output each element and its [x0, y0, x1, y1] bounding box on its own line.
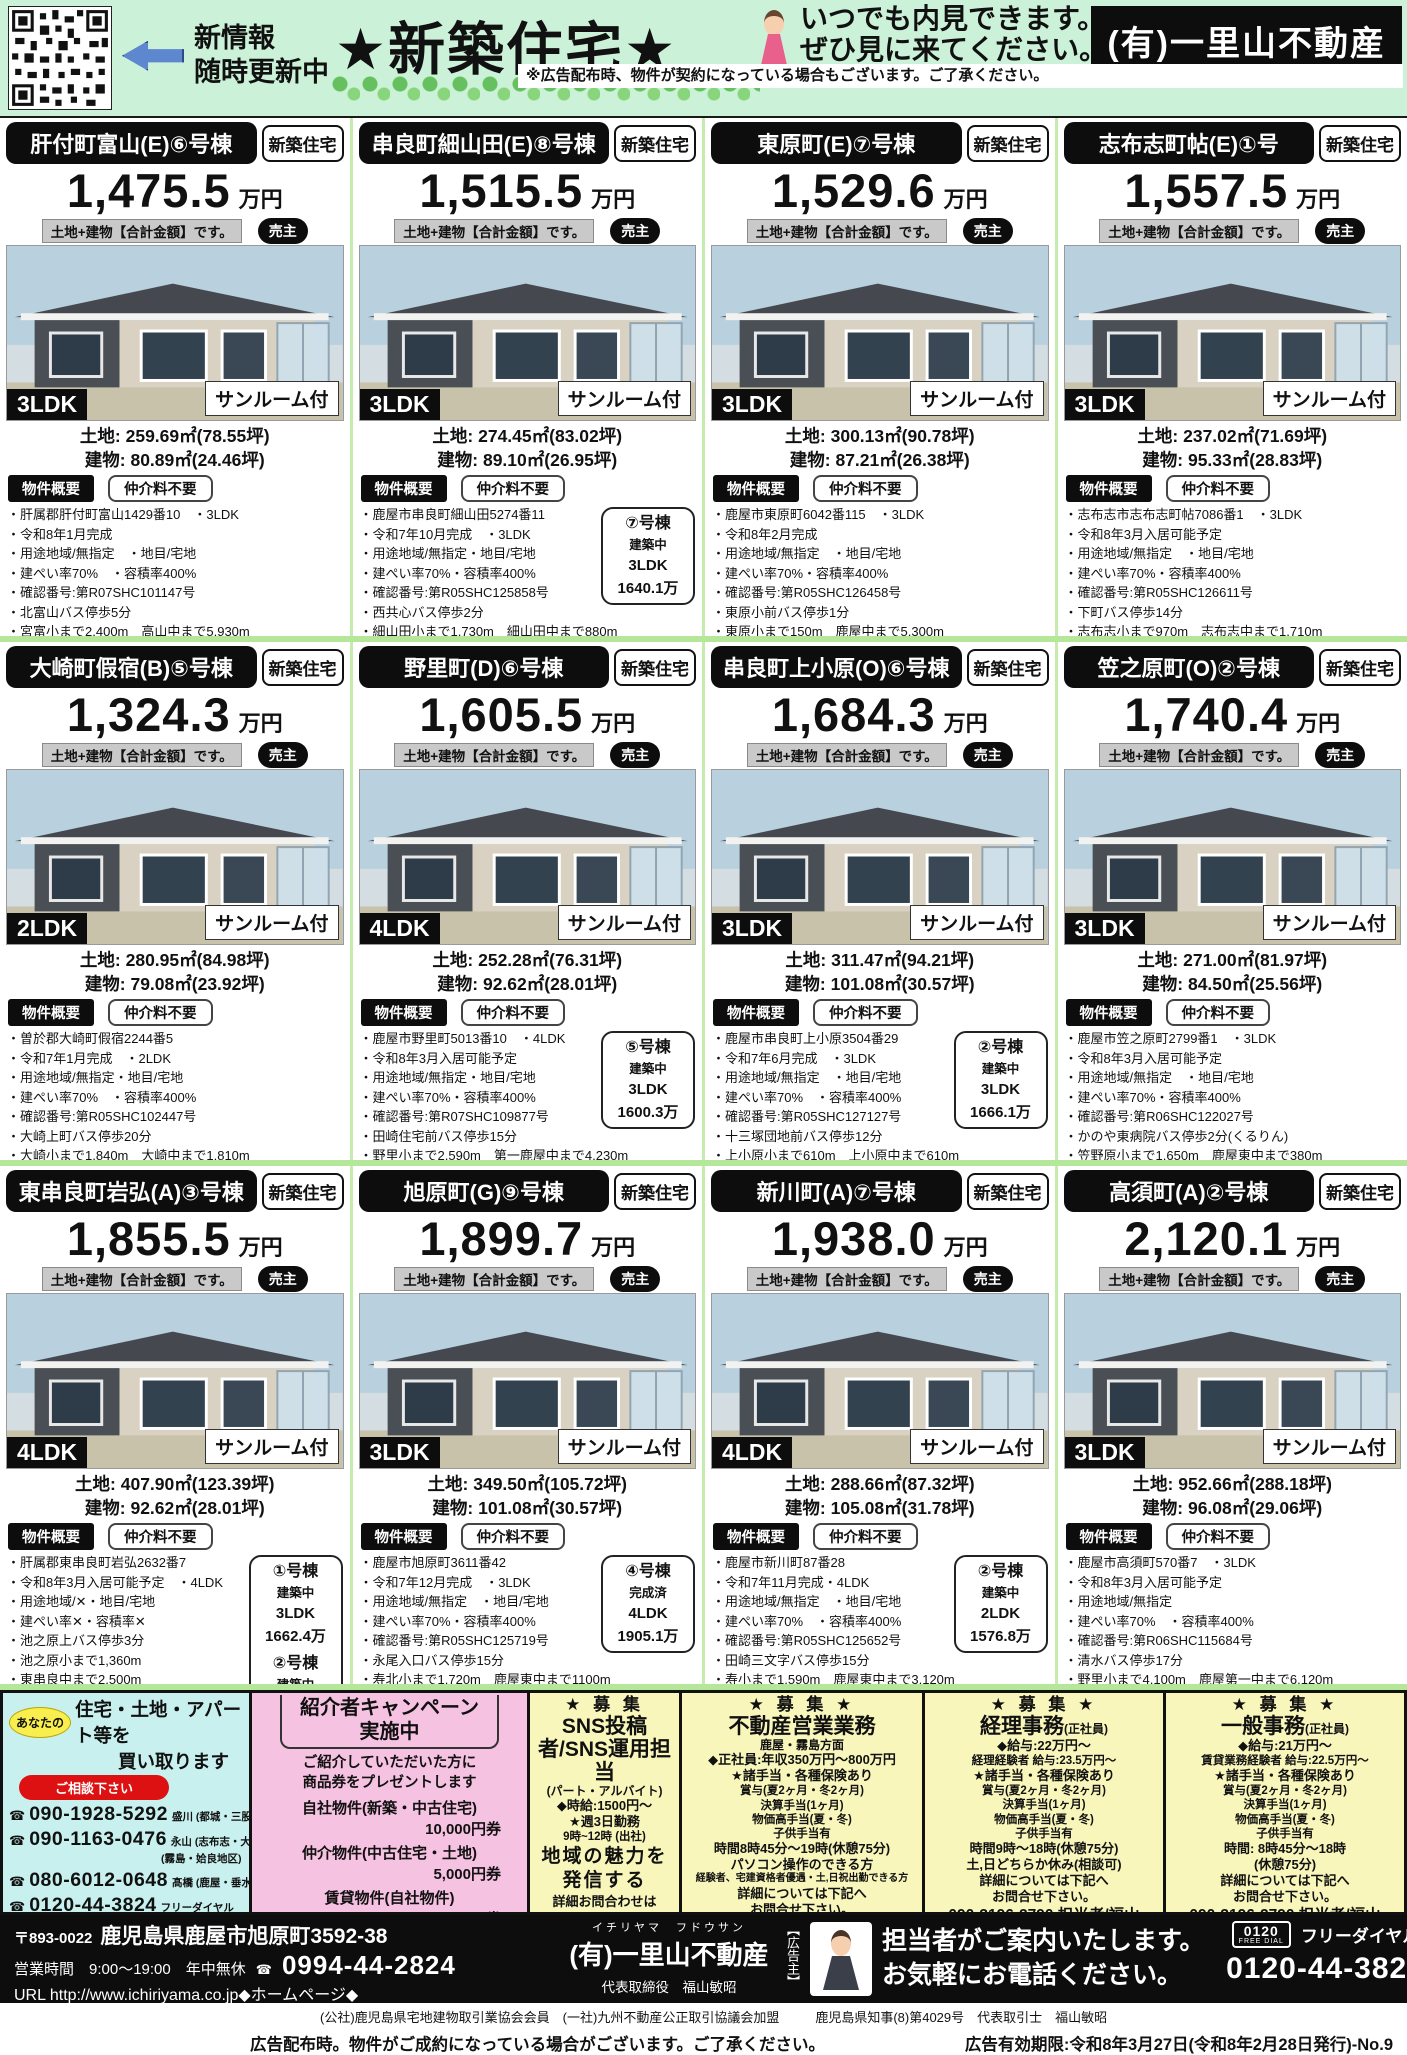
qr-code: [8, 6, 112, 110]
price-unit: 万円: [591, 711, 635, 736]
property-detail: 永尾入口バス停歩15分: [360, 1651, 696, 1671]
unit-box-status: 建築中: [605, 1060, 691, 1079]
new-build-badge: 新築住宅: [1319, 649, 1401, 686]
detail-list: 志布志市志布志町帖7086番1 ・3LDK令和8年3月入居可能予定用途地域/無指…: [1065, 505, 1401, 636]
land-label: 土地:: [432, 426, 473, 446]
summary-badge: 物件概要: [361, 475, 447, 502]
contract-note: 広告配布時。物件がご成約になっている場合がございます。ご了承ください。: [250, 2031, 825, 2055]
unit-box-layout: 3LDK: [605, 555, 691, 578]
job-line: 090-3196-2790 担当者/福山: [1168, 1906, 1402, 1915]
building-label: 建物:: [85, 974, 126, 994]
job-line: 物価高手当(夏・冬): [1168, 1813, 1402, 1827]
no-fee-badge: 仲介料不要: [813, 1523, 918, 1550]
unit-box-status: 完成済: [605, 1584, 691, 1603]
price-unit: 万円: [944, 1235, 988, 1260]
job-title: 不動産営業業務: [729, 1715, 876, 1738]
land-area: 土地: 288.66㎡(87.32坪): [711, 1473, 1049, 1497]
building-value: 84.50㎡(25.56坪): [1188, 974, 1322, 994]
no-fee-badge: 仲介料不要: [1166, 1523, 1271, 1550]
property-detail: 上小原小まで610m 上小原中まで610m: [712, 1146, 1048, 1160]
building-label: 建物:: [437, 974, 478, 994]
land-area: 土地: 237.02㎡(71.69坪): [1064, 425, 1402, 449]
unit-box-layout: 4LDK: [605, 1603, 691, 1626]
building-label: 建物:: [785, 974, 826, 994]
property-detail: 鹿屋市笠之原町2799番1 ・3LDK: [1065, 1029, 1401, 1049]
property-detail: 確認番号:第R05SHC126611号: [1065, 583, 1401, 603]
building-label: 建物:: [1142, 974, 1183, 994]
buyback-phone-number: 090-1163-0476: [29, 1828, 167, 1850]
price-unit: 万円: [591, 1235, 635, 1260]
buyback-phone-region: フリーダイヤル: [161, 1902, 234, 1914]
property-title: 大崎町假宿(B)⑤号棟: [6, 646, 257, 688]
campaign-item-label: 賃貸物件(自社物件): [260, 1887, 519, 1908]
job-lines: ◆時給:1500円〜★週3日勤務9時~12時 (出社)地域の魅力を発信する詳細お…: [532, 1798, 677, 1915]
land-area: 土地: 259.69㎡(78.55坪): [6, 425, 344, 449]
phone-icon: ☎: [9, 1834, 25, 1849]
property-card: 串良町細山田(E)⑧号棟 新築住宅 1,515.5万円 土地+建物【合計金額】で…: [350, 118, 703, 636]
building-value: 92.62㎡(28.01坪): [483, 974, 617, 994]
total-amount-label: 土地+建物【合計金額】です。: [42, 219, 242, 243]
sunroom-tag: サンルーム付: [558, 1429, 691, 1464]
property-photo: 3LDK サンルーム付: [359, 245, 697, 421]
property-detail: 令和8年2月完成: [712, 525, 1048, 545]
no-fee-badge: 仲介料不要: [1166, 999, 1271, 1026]
land-label: 土地:: [785, 1474, 826, 1494]
job-line: ◆給与:22万円〜: [927, 1738, 1161, 1754]
buyback-title2: 買い取ります: [9, 1748, 243, 1774]
property-row: 肝付町富山(E)⑥号棟 新築住宅 1,475.5万円 土地+建物【合計金額】です…: [0, 118, 1407, 642]
property-photo: 3LDK サンルーム付: [1064, 245, 1402, 421]
buyback-bubble: あなたの: [9, 1707, 71, 1738]
job-line: ◆正社員:年収350万円〜800万円: [684, 1752, 920, 1768]
unit-box-status: 建築中: [958, 1060, 1044, 1079]
job-line: お問合せ下さい。: [1168, 1889, 1402, 1905]
job-line: 子供手当有: [684, 1827, 920, 1841]
building-value: 95.33㎡(28.83坪): [1188, 450, 1322, 470]
property-detail: 大崎小まで1,840m 大崎中まで1,810m: [7, 1146, 343, 1160]
property-price: 1,855.5: [67, 1212, 231, 1265]
property-detail: 建ぺい率70%・容積率400%: [1065, 564, 1401, 584]
campaign-item: 仲介物件(中古住宅・土地) 5,000円券: [260, 1842, 519, 1884]
land-area: 土地: 274.45㎡(83.02坪): [359, 425, 697, 449]
building-value: 101.08㎡(30.57坪): [478, 1498, 622, 1518]
footer: 〒893-0022鹿児島県鹿屋市旭原町3592-38 営業時間 9:00〜19:…: [0, 1915, 1407, 2003]
land-value: 300.13㎡(90.78坪): [831, 426, 975, 446]
unit-box: ①号棟建築中3LDK1662.4万②号棟建築中3LDK1669.1万: [249, 1555, 343, 1684]
property-title: 笠之原町(O)②号棟: [1064, 646, 1315, 688]
job-recruit-header: ★ 募 集 ★: [1168, 1695, 1402, 1715]
job-line: 詳細については下記へ: [927, 1873, 1161, 1889]
property-photo: 3LDK サンルーム付: [1064, 1293, 1402, 1469]
sunroom-tag: サンルーム付: [1263, 905, 1396, 940]
buyback-phone-region: 盛川 (都城・三股地区): [172, 1811, 252, 1823]
summary-badge: 物件概要: [713, 475, 799, 502]
staff-avatar-icon: [810, 1922, 872, 1996]
unit-box: ⑦号棟建築中3LDK1640.1万: [601, 507, 695, 605]
job-line: お問合せ下さい。: [684, 1902, 920, 1915]
land-label: 土地:: [80, 950, 121, 970]
property-price: 1,740.4: [1124, 688, 1288, 741]
property-detail: 志布志市志布志町帖7086番1 ・3LDK: [1065, 505, 1401, 525]
unit-box: ⑤号棟建築中3LDK1600.3万: [601, 1031, 695, 1129]
total-amount-label: 土地+建物【合計金額】です。: [394, 743, 594, 767]
property-detail: 宮富小まで2,400m 高山中まで5,930m: [7, 622, 343, 636]
building-area: 建物: 84.50㎡(25.56坪): [1064, 973, 1402, 997]
job-recruit-header: ★ 募 集 ★: [684, 1695, 920, 1715]
campaign-desc2: 商品券をプレゼントします: [260, 1773, 519, 1793]
no-fee-badge: 仲介料不要: [461, 475, 566, 502]
job-line: パソコン操作のできる方: [684, 1857, 920, 1873]
property-detail: 田崎三文字バス停歩15分: [712, 1651, 1048, 1671]
layout-tag: 3LDK: [712, 913, 792, 944]
buyback-panel: あなたの 住宅・土地・アパート等を 買い取ります ご相談下さい ☎ 090-19…: [0, 1690, 252, 1915]
property-photo: 4LDK サンルーム付: [6, 1293, 344, 1469]
new-build-badge: 新築住宅: [614, 125, 696, 162]
sunroom-tag: サンルーム付: [558, 905, 691, 940]
unit-box-section: ②号棟建築中2LDK1576.8万: [958, 1560, 1044, 1648]
land-value: 311.47㎡(94.21坪): [831, 950, 974, 970]
property-detail: 用途地域/無指定・地目/宅地: [7, 1068, 343, 1088]
job-title-suffix: (正社員): [1064, 1722, 1108, 1736]
property-title: 串良町上小原(O)⑥号棟: [711, 646, 962, 688]
sunroom-tag: サンルーム付: [910, 1429, 1043, 1464]
seller-badge: 売主: [610, 218, 660, 244]
layout-tag: 3LDK: [7, 389, 87, 420]
sunroom-tag: サンルーム付: [1263, 1429, 1396, 1464]
building-value: 101.08㎡(30.57坪): [831, 974, 975, 994]
job-line: 時間: 8時45分〜18時: [1168, 1841, 1402, 1857]
guide-line2: お気軽にお電話ください。: [882, 1959, 1205, 1993]
job-line: ★諸手当・各種保険あり: [1168, 1768, 1402, 1784]
property-photo: 3LDK サンルーム付: [359, 1293, 697, 1469]
building-area: 建物: 92.62㎡(28.01坪): [359, 973, 697, 997]
property-title: 串良町細山田(E)⑧号棟: [359, 122, 610, 164]
total-amount-label: 土地+建物【合計金額】です。: [1099, 219, 1299, 243]
seller-badge: 売主: [610, 742, 660, 768]
seller-badge: 売主: [258, 1266, 308, 1292]
summary-badge: 物件概要: [1066, 1523, 1152, 1550]
total-amount-label: 土地+建物【合計金額】です。: [42, 1267, 242, 1291]
building-value: 92.62㎡(28.01坪): [130, 1498, 264, 1518]
property-detail: 建ぺい率70%・容積率400%: [1065, 1088, 1401, 1108]
campaign-item: 賃貸物件(自社物件) 2,000円券: [260, 1887, 519, 1915]
unit-box-section: ②号棟建築中3LDK1666.1万: [958, 1036, 1044, 1124]
price-unit: 万円: [591, 187, 635, 212]
new-build-badge: 新築住宅: [614, 649, 696, 686]
job-lines: ◆給与:22万円〜経理経験者 給与:23.5万円〜★諸手当・各種保険あり賞与(夏…: [927, 1738, 1161, 1915]
property-detail: 用途地域/無指定: [1065, 1592, 1401, 1612]
building-area: 建物: 101.08㎡(30.57坪): [359, 1497, 697, 1521]
detail-list: 鹿屋市高須町570番7 ・3LDK令和8年3月入居可能予定用途地域/無指定建ぺい…: [1065, 1553, 1401, 1684]
job-line: 経験者、宅建資格者優遇・土,日祝出勤できる方: [684, 1873, 920, 1885]
seller-badge: 売主: [963, 1266, 1013, 1292]
building-label: 建物:: [437, 450, 478, 470]
buyback-phone-region-extra: (霧島・姶良地区): [9, 1851, 243, 1866]
land-area: 土地: 271.00㎡(81.97坪): [1064, 949, 1402, 973]
seller-badge: 売主: [1315, 742, 1365, 768]
job-title-suffix: (正社員): [1305, 1722, 1349, 1736]
building-label: 建物:: [790, 450, 831, 470]
property-detail: 建ぺい率70% ・容積率400%: [7, 564, 343, 584]
seller-badge: 売主: [1315, 1266, 1365, 1292]
buyback-phone-row: ☎ 090-1928-5292 盛川 (都城・三股地区): [9, 1803, 243, 1825]
buyback-phone-number: 0120-44-3824: [29, 1894, 156, 1915]
property-detail: 東原小前バス停歩1分: [712, 603, 1048, 623]
phone-icon: ☎: [9, 1900, 25, 1915]
price-unit: 万円: [944, 187, 988, 212]
price-unit: 万円: [239, 711, 283, 736]
no-fee-badge: 仲介料不要: [813, 475, 918, 502]
land-area: 土地: 252.28㎡(76.31坪): [359, 949, 697, 973]
land-label: 土地:: [785, 950, 826, 970]
update-line1: 新情報: [194, 22, 329, 56]
property-detail: 用途地域/無指定 ・地目/宅地: [1065, 544, 1401, 564]
property-price: 2,120.1: [1124, 1212, 1288, 1265]
no-fee-badge: 仲介料不要: [461, 999, 566, 1026]
building-value: 105.08㎡(31.78坪): [831, 1498, 975, 1518]
land-value: 237.02㎡(71.69坪): [1183, 426, 1327, 446]
property-price: 1,684.3: [772, 688, 936, 741]
property-detail: 建ぺい率70% ・容積率400%: [1065, 1612, 1401, 1632]
building-label: 建物:: [432, 1498, 473, 1518]
land-area: 土地: 407.90㎡(123.39坪): [6, 1473, 344, 1497]
association-line: (公社)鹿児島県宅地建物取引業協会会員 (一社)九州不動産公正取引協議会加盟 鹿…: [0, 2003, 1407, 2028]
land-area: 土地: 311.47㎡(94.21坪): [711, 949, 1049, 973]
update-line2: 随時更新中: [194, 56, 329, 90]
property-title: 東串良町岩弘(A)③号棟: [6, 1170, 257, 1212]
campaign-title: 紹介者キャンペーン 実施中: [280, 1695, 499, 1749]
new-build-badge: 新築住宅: [1319, 125, 1401, 162]
new-build-badge: 新築住宅: [967, 125, 1049, 162]
no-fee-badge: 仲介料不要: [813, 999, 918, 1026]
summary-badge: 物件概要: [361, 1523, 447, 1550]
land-value: 259.69㎡(78.55坪): [126, 426, 270, 446]
total-amount-label: 土地+建物【合計金額】です。: [1099, 1267, 1299, 1291]
campaign-item-label: 仲介物件(中古住宅・土地): [260, 1842, 519, 1863]
property-detail: 十三塚団地前バス停歩12分: [712, 1127, 1048, 1147]
layout-tag: 3LDK: [360, 1437, 440, 1468]
building-value: 79.08㎡(23.92坪): [130, 974, 264, 994]
sunroom-tag: サンルーム付: [205, 1429, 338, 1464]
property-detail: 寿北小まで1,720m 鹿屋東中まで1100m: [360, 1670, 696, 1684]
property-card: 肝付町富山(E)⑥号棟 新築住宅 1,475.5万円 土地+建物【合計金額】です…: [0, 118, 350, 636]
new-build-badge: 新築住宅: [262, 649, 344, 686]
job-posting: ★ 募 集 ★ 一般事務(正社員) ◆給与:21万円〜賃貸業務経験者 給与:22…: [1166, 1690, 1407, 1915]
building-label: 建物:: [1142, 1498, 1183, 1518]
land-label: 土地:: [80, 426, 121, 446]
seller-badge: 売主: [963, 218, 1013, 244]
property-detail: 野里小まで2,590m 第一鹿屋中まで4,230m: [360, 1146, 696, 1160]
no-fee-badge: 仲介料不要: [1166, 475, 1271, 502]
unit-box: ②号棟建築中3LDK1666.1万: [954, 1031, 1048, 1129]
building-label: 建物:: [85, 450, 126, 470]
property-detail: 野里小まで4,100m 鹿屋第一中まで6,120m: [1065, 1670, 1401, 1684]
property-card: 野里町(D)⑥号棟 新築住宅 1,605.5万円 土地+建物【合計金額】です。 …: [350, 642, 703, 1160]
postal-code: 〒893-0022: [14, 1930, 92, 1947]
left-arrow-icon: [122, 41, 184, 71]
unit-box-section: ②号棟建築中3LDK1669.1万: [253, 1652, 339, 1684]
buyback-phone-row: ☎ 0120-44-3824 フリーダイヤル: [9, 1894, 243, 1915]
summary-badge: 物件概要: [8, 1523, 94, 1550]
seller-badge: 売主: [963, 742, 1013, 768]
freedial-label: フリーダイヤル: [1301, 1922, 1407, 1947]
detail-list: 鹿屋市東原町6042番115 ・3LDK令和8年2月完成用途地域/無指定 ・地目…: [712, 505, 1048, 636]
unit-box-unit: ④号棟: [605, 1560, 691, 1584]
land-label: 土地:: [432, 950, 473, 970]
property-title: 肝付町富山(E)⑥号棟: [6, 122, 257, 164]
building-value: 87.21㎡(26.38坪): [835, 450, 969, 470]
address-text: 鹿児島県鹿屋市旭原町3592-38: [100, 1925, 387, 1948]
property-detail: 用途地域/無指定 ・地目/宅地: [712, 544, 1048, 564]
property-photo: 3LDK サンルーム付: [711, 245, 1049, 421]
unit-box-unit: ②号棟: [958, 1560, 1044, 1584]
new-build-badge: 新築住宅: [262, 125, 344, 162]
office-phone: 0994-44-2824: [282, 1950, 456, 1981]
phone-icon: ☎: [256, 1962, 272, 1978]
property-price: 1,475.5: [67, 164, 231, 217]
property-detail: 北富山バス停歩5分: [7, 603, 343, 623]
job-line: 物価高手当(夏・冬): [927, 1813, 1161, 1827]
job-line: 9時~12時 (出社): [532, 1830, 677, 1844]
total-amount-label: 土地+建物【合計金額】です。: [394, 1267, 594, 1291]
campaign-item-value: 2,000円券: [260, 1908, 519, 1915]
price-unit: 万円: [239, 187, 283, 212]
land-value: 274.45㎡(83.02坪): [478, 426, 622, 446]
layout-tag: 3LDK: [360, 389, 440, 420]
job-recruit-header: ★ 募 集: [532, 1695, 677, 1715]
job-lines: ◆正社員:年収350万円〜800万円★諸手当・各種保険あり賞与(夏2ヶ月・冬2ヶ…: [684, 1752, 920, 1915]
update-note: 新情報 随時更新中: [122, 22, 329, 90]
job-line: 詳細については下記へ: [1168, 1873, 1402, 1889]
building-area: 建物: 79.08㎡(23.92坪): [6, 973, 344, 997]
property-title: 野里町(D)⑥号棟: [359, 646, 610, 688]
building-area: 建物: 89.10㎡(26.95坪): [359, 449, 697, 473]
new-build-badge: 新築住宅: [262, 1173, 344, 1210]
layout-tag: 3LDK: [712, 389, 792, 420]
building-area: 建物: 92.62㎡(28.01坪): [6, 1497, 344, 1521]
property-detail: 下町バス停歩14分: [1065, 603, 1401, 623]
property-detail: 寿小まで1,590m 鹿屋東中まで3,120m: [712, 1670, 1048, 1684]
land-area: 土地: 952.66㎡(288.18坪): [1064, 1473, 1402, 1497]
unit-box-section: ①号棟建築中3LDK1662.4万: [253, 1560, 339, 1648]
consult-badge: ご相談下さい: [19, 1775, 169, 1800]
building-area: 建物: 105.08㎡(31.78坪): [711, 1497, 1049, 1521]
property-detail: 確認番号:第R07SHC101147号: [7, 583, 343, 603]
price-unit: 万円: [1296, 711, 1340, 736]
unit-box-section: ⑤号棟建築中3LDK1600.3万: [605, 1036, 691, 1124]
total-amount-label: 土地+建物【合計金額】です。: [747, 743, 947, 767]
property-card: 高須町(A)②号棟 新築住宅 2,120.1万円 土地+建物【合計金額】です。 …: [1055, 1166, 1407, 1684]
building-area: 建物: 95.33㎡(28.83坪): [1064, 449, 1402, 473]
seller-badge: 売主: [610, 1266, 660, 1292]
job-line: 決算手当(1ヶ月): [927, 1798, 1161, 1812]
property-photo: 3LDK サンルーム付: [711, 769, 1049, 945]
job-line: 決算手当(1ヶ月): [1168, 1798, 1402, 1812]
total-amount-label: 土地+建物【合計金額】です。: [1099, 743, 1299, 767]
property-detail: 田崎住宅前バス停歩15分: [360, 1127, 696, 1147]
building-area: 建物: 101.08㎡(30.57坪): [711, 973, 1049, 997]
job-posting: ★ 募 集 SNS投稿者/SNS運用担当 (パート・アルバイト) ◆時給:150…: [530, 1690, 682, 1915]
property-detail: 令和8年3月入居可能予定: [1065, 525, 1401, 545]
summary-badge: 物件概要: [713, 1523, 799, 1550]
unit-box-unit: ①号棟: [253, 1560, 339, 1584]
price-unit: 万円: [239, 1235, 283, 1260]
land-label: 土地:: [785, 426, 826, 446]
job-lines: ◆給与:21万円〜賃貸業務経験者 給与:22.5万円〜★諸手当・各種保険あり賞与…: [1168, 1738, 1402, 1915]
flyer-page: { "header": { "update_line1": "新情報", "up…: [0, 0, 1407, 2048]
job-posting: ★ 募 集 ★ 不動産営業業務 鹿屋・霧島方面 ◆正社員:年収350万円〜800…: [682, 1690, 925, 1915]
layout-tag: 3LDK: [1065, 389, 1145, 420]
job-title: 一般事務: [1221, 1715, 1305, 1738]
unit-box-unit: ⑤号棟: [605, 1036, 691, 1060]
job-line: 決算手当(1ヶ月): [684, 1799, 920, 1813]
campaign-item-label: 自社物件(新築・中古住宅): [260, 1797, 519, 1818]
total-amount-label: 土地+建物【合計金額】です。: [42, 743, 242, 767]
summary-badge: 物件概要: [8, 475, 94, 502]
unit-box-layout: 3LDK: [253, 1603, 339, 1626]
freedial-logo-top: 0120: [1239, 1924, 1284, 1938]
job-line: ◆給与:21万円〜: [1168, 1738, 1402, 1754]
job-line: 賞与(夏2ヶ月・冬2ヶ月): [927, 1784, 1161, 1798]
building-value: 80.89㎡(24.46坪): [130, 450, 264, 470]
property-detail: 鹿屋市東原町6042番115 ・3LDK: [712, 505, 1048, 525]
job-line: 地域の魅力を: [532, 1845, 677, 1870]
property-detail: 曽於郡大崎町假宿2244番5: [7, 1029, 343, 1049]
property-detail: 清水バス停歩17分: [1065, 1651, 1401, 1671]
property-detail: 令和7年1月完成 ・2LDK: [7, 1049, 343, 1069]
layout-tag: 4LDK: [712, 1437, 792, 1468]
land-label: 土地:: [1133, 1474, 1174, 1494]
unit-box-status: 建築中: [605, 536, 691, 555]
land-area: 土地: 300.13㎡(90.78坪): [711, 425, 1049, 449]
property-card: 笠之原町(O)②号棟 新築住宅 1,740.4万円 土地+建物【合計金額】です。…: [1055, 642, 1407, 1160]
property-price: 1,938.0: [772, 1212, 936, 1265]
seller-badge: 売主: [258, 218, 308, 244]
sunroom-tag: サンルーム付: [1263, 381, 1396, 416]
campaign-panel: 紹介者キャンペーン 実施中 ご紹介していただいた方に 商品券をプレゼントします …: [252, 1690, 530, 1915]
layout-tag: 2LDK: [7, 913, 87, 944]
unit-box-layout: 2LDK: [958, 1603, 1044, 1626]
job-line: 賞与(夏2ヶ月・冬2ヶ月): [684, 1784, 920, 1798]
total-amount-label: 土地+建物【合計金額】です。: [747, 219, 947, 243]
header-disclaimer: ※広告配布時、物件が契約になっている場合もございます。ご了承ください。: [518, 64, 1403, 88]
ad-sponsor-label: 【広告主】: [778, 1915, 802, 2003]
land-value: 280.95㎡(84.98坪): [126, 950, 270, 970]
property-detail: 建ぺい率70%・容積率400%: [712, 564, 1048, 584]
job-line: ◆時給:1500円〜: [532, 1798, 677, 1814]
unit-box-unit: ⑦号棟: [605, 512, 691, 536]
property-detail: 志布志小まで970m 志布志中まで1,710m: [1065, 622, 1401, 636]
buyback-phone-region: 髙橋 (鹿屋・垂水地区): [172, 1877, 252, 1889]
campaign-title1: 紹介者キャンペーン: [300, 1696, 479, 1720]
property-photo: 4LDK サンルーム付: [359, 769, 697, 945]
land-value: 349.50㎡(105.72坪): [473, 1474, 627, 1494]
property-detail: 西共心バス停歩2分: [360, 603, 696, 623]
land-value: 252.28㎡(76.31坪): [478, 950, 622, 970]
land-value: 952.66㎡(288.18坪): [1178, 1474, 1332, 1494]
price-unit: 万円: [1296, 187, 1340, 212]
job-line: 子供手当有: [1168, 1827, 1402, 1841]
unit-box-status: 建築中: [253, 1676, 339, 1684]
job-line: 発信する: [532, 1869, 677, 1894]
land-value: 271.00㎡(81.97坪): [1183, 950, 1327, 970]
layout-tag: 3LDK: [1065, 1437, 1145, 1468]
property-detail: 確認番号:第R06SHC115684号: [1065, 1631, 1401, 1651]
campaign-item: 自社物件(新築・中古住宅) 10,000円券: [260, 1797, 519, 1839]
footer-note-line: 広告配布時。物件がご成約になっている場合がございます。ご了承ください。 広告有効…: [0, 2028, 1407, 2055]
property-detail: 大崎上町バス停歩20分: [7, 1127, 343, 1147]
buyback-phone-number: 080-6012-0648: [29, 1869, 168, 1891]
